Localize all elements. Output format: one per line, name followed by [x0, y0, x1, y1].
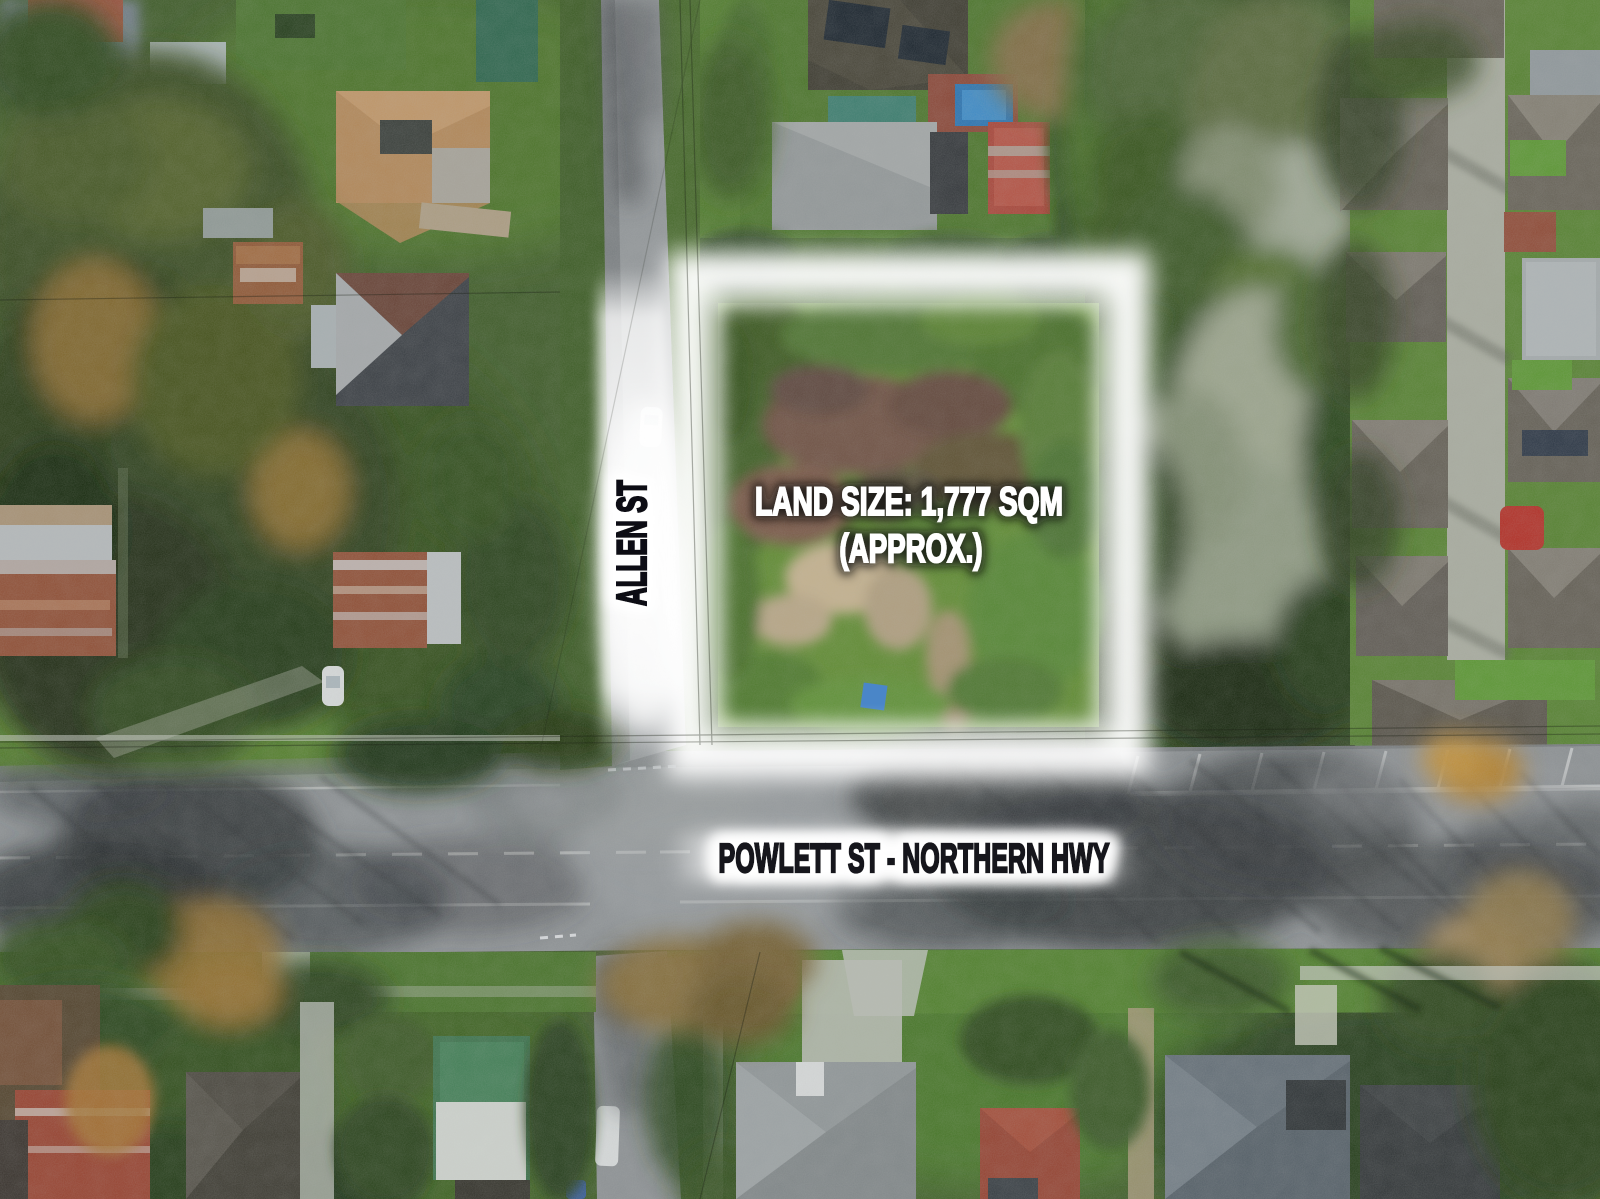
- svg-text:(APPROX.): (APPROX.): [840, 527, 983, 571]
- svg-text:POWLETT ST - NORTHERN HWY: POWLETT ST - NORTHERN HWY: [719, 835, 1110, 881]
- svg-text:ALLEN ST: ALLEN ST: [608, 480, 655, 606]
- svg-text:LAND SIZE: 1,777 SQM: LAND SIZE: 1,777 SQM: [755, 480, 1063, 524]
